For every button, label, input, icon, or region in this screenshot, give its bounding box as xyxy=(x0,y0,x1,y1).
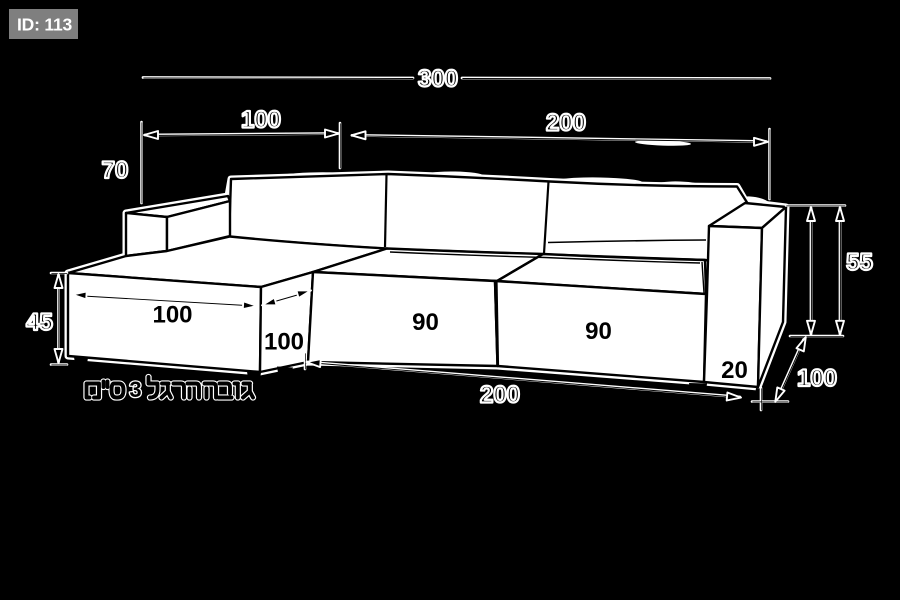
svg-text:45: 45 xyxy=(26,309,53,336)
svg-text:ID: 113: ID: 113 xyxy=(17,15,72,35)
svg-text:300: 300 xyxy=(418,66,458,93)
svg-text:55: 55 xyxy=(846,249,873,276)
svg-text:90: 90 xyxy=(585,318,612,345)
svg-text:3: 3 xyxy=(129,377,141,402)
svg-text:100: 100 xyxy=(241,107,281,134)
svg-text:200: 200 xyxy=(480,382,520,409)
svg-text:100: 100 xyxy=(152,302,192,329)
svg-text:100: 100 xyxy=(264,329,304,356)
svg-text:70: 70 xyxy=(102,157,129,184)
svg-text:90: 90 xyxy=(412,309,439,336)
svg-text:100: 100 xyxy=(797,365,837,392)
svg-text:20: 20 xyxy=(721,357,748,384)
svg-text:200: 200 xyxy=(546,110,586,137)
